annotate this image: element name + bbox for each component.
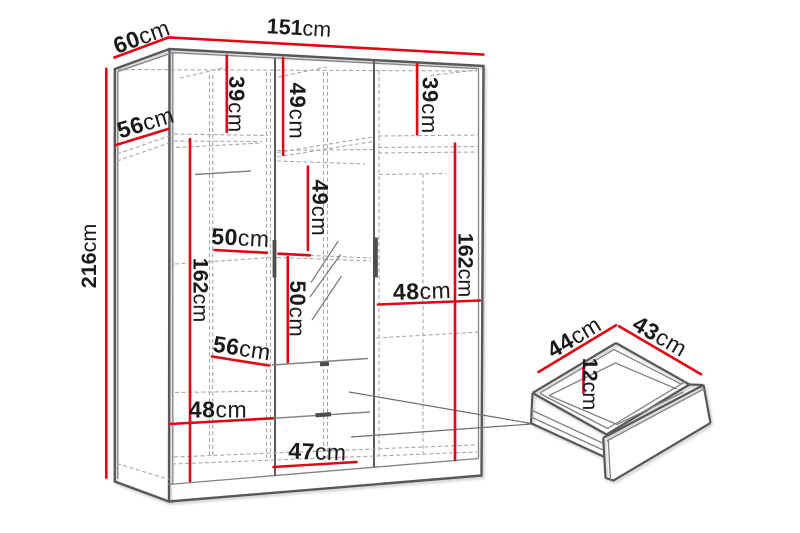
- svg-text:50cm: 50cm: [211, 223, 271, 252]
- svg-text:162cm: 162cm: [189, 258, 213, 323]
- svg-text:50cm: 50cm: [285, 280, 310, 337]
- svg-text:151cm: 151cm: [266, 14, 332, 42]
- svg-text:56cm: 56cm: [211, 331, 273, 366]
- svg-text:216cm: 216cm: [77, 224, 101, 289]
- svg-text:162cm: 162cm: [454, 233, 478, 298]
- svg-text:39cm: 39cm: [224, 76, 249, 133]
- svg-text:48cm: 48cm: [189, 397, 247, 423]
- svg-text:49cm: 49cm: [308, 179, 333, 236]
- svg-text:39cm: 39cm: [418, 77, 443, 134]
- svg-text:48cm: 48cm: [392, 277, 451, 305]
- svg-text:12cm: 12cm: [578, 358, 602, 411]
- svg-text:47cm: 47cm: [288, 437, 347, 465]
- svg-text:49cm: 49cm: [285, 82, 310, 139]
